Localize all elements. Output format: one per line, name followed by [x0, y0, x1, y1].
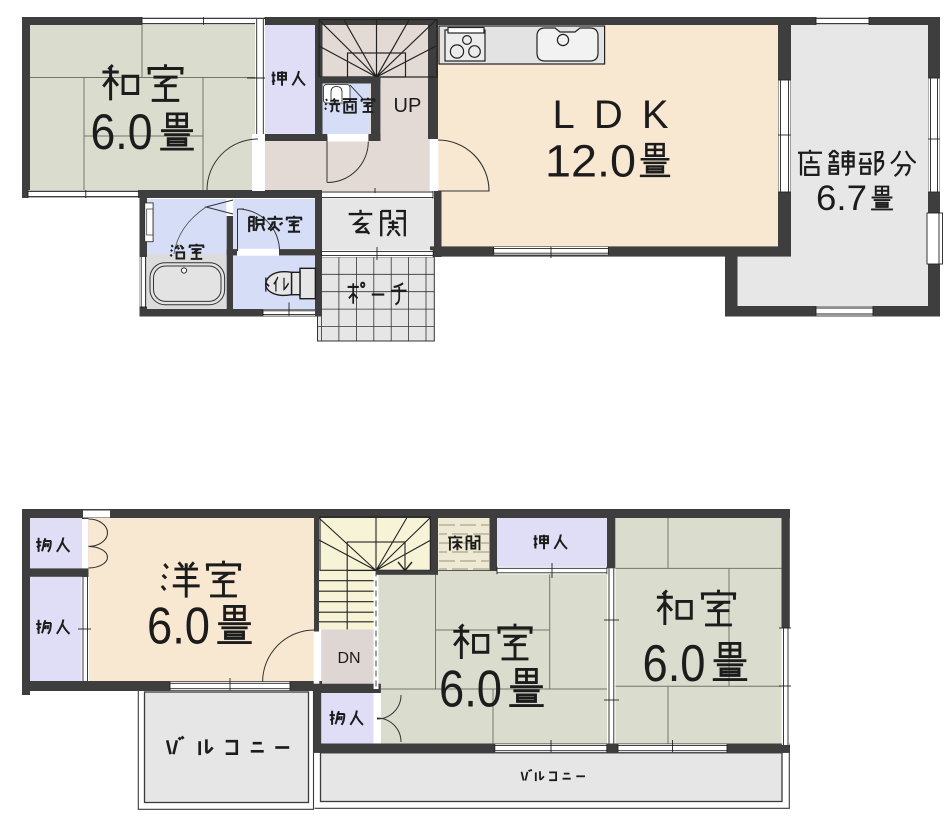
svg-text:6.0: 6.0	[147, 598, 210, 656]
svg-text:6.0: 6.0	[643, 635, 706, 693]
svg-text:6.0: 6.0	[439, 661, 502, 719]
svg-text:6.7: 6.7	[816, 179, 867, 218]
svg-text:6.0: 6.0	[91, 104, 153, 160]
svg-text:12.0: 12.0	[545, 136, 636, 187]
svg-text:UP: UP	[394, 95, 422, 117]
svg-text:DN: DN	[338, 650, 361, 667]
svg-text:LDK: LDK	[553, 93, 669, 137]
